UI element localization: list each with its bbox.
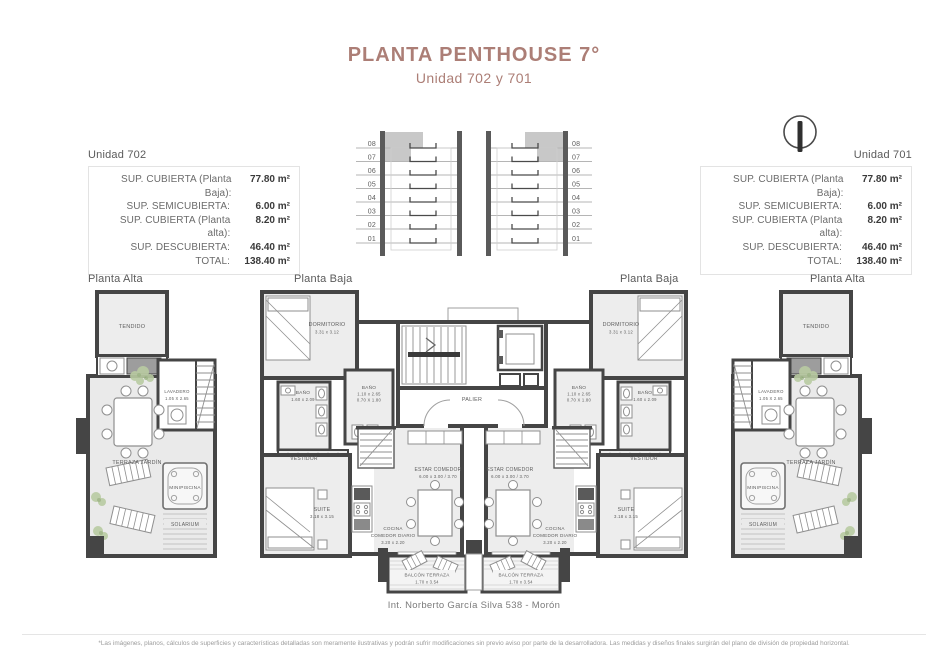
floor-label: 02 (368, 222, 376, 229)
room-label-lavadero: LAVADERO (758, 389, 784, 394)
plan-title-baja-left: Planta Baja (294, 273, 352, 285)
table-row: SUP. DESCUBIERTA:46.40 m² (707, 241, 902, 255)
floor-label: 01 (572, 236, 580, 243)
unit-701-card: Unidad 701 SUP. CUBIERTA (Planta Baja):7… (700, 149, 912, 275)
bed (266, 296, 310, 360)
room-label-balcon: BALCÓN TERRAZA (498, 572, 544, 578)
kitchen-counter (352, 486, 372, 532)
unit-702-table: SUP. CUBIERTA (Planta Baja):77.80 m² SUP… (88, 166, 300, 275)
room-label-estar: ESTAR COMEDOR (486, 467, 533, 473)
room-label-solarium: SOLARIUM (171, 522, 199, 528)
room-dim: 1.70 x 3.54 (509, 580, 533, 585)
unit-702-name: Unidad 702 (88, 149, 300, 161)
room-label-tendido: TENDIDO (803, 324, 830, 330)
room-dim: 1.05 X 2.65 (759, 396, 783, 401)
floor-label: 02 (572, 222, 580, 229)
room-label-bano: BAÑO (296, 389, 311, 396)
north-indicator-icon (784, 116, 816, 152)
divider-shaft (466, 554, 482, 590)
room-label-bano: BAÑO (572, 384, 587, 391)
room-dim: 1.10 x 2.65 (357, 392, 381, 397)
room-label-cocina: COMEDOR DIARIO (533, 533, 578, 538)
room-label-terraza: TERRAZA JARDÍN (786, 459, 835, 466)
room-dim: 3.18 x 3.15 (310, 514, 334, 519)
page-subtitle: Unidad 702 y 701 (0, 70, 948, 86)
room-label-minipiscina: MINIPISCINA (747, 485, 779, 490)
table-row: SUP. CUBIERTA (Planta alta):8.20 m² (95, 214, 290, 241)
room-dim: 1.60 x 2.09 (633, 397, 657, 402)
balcony (388, 551, 466, 592)
room-dim: 6.00 x 3.00 / 3.70 (419, 474, 457, 479)
room-label-cocina: COMEDOR DIARIO (371, 533, 416, 538)
floor-label: 03 (572, 209, 580, 216)
floor-label: 04 (572, 195, 580, 202)
room-label-estar: ESTAR COMEDOR (414, 467, 461, 473)
table-row: SUP. SEMICUBIERTA:6.00 m² (707, 200, 902, 214)
room-label-suite: SUITE (618, 507, 635, 513)
floor-label: 06 (368, 168, 376, 175)
floor-label: 05 (572, 182, 580, 189)
room-label-cocina: COCINA (383, 526, 403, 531)
planta-alta-plan-left (76, 292, 215, 558)
floor-label: 07 (572, 155, 580, 162)
floorplan-canvas: 08 07 06 05 04 03 02 01 08 07 06 05 04 0… (0, 0, 948, 670)
floor-label: 03 (368, 209, 376, 216)
room-label-solarium: SOLARIUM (749, 522, 777, 528)
plan-title-baja-right: Planta Baja (620, 273, 678, 285)
sofa (408, 431, 462, 444)
table-row: TOTAL:138.40 m² (95, 255, 290, 269)
plan-title-alta-left: Planta Alta (88, 273, 143, 285)
room-dim: 0.70 X 1.80 (357, 398, 382, 403)
room-label-tendido: TENDIDO (119, 324, 146, 330)
room-label-dormitorio: DORMITORIO (309, 322, 346, 328)
project-address: Int. Norberto García Silva 538 - Morón (0, 600, 948, 611)
floor-label: 08 (572, 141, 580, 148)
room-label-dormitorio: DORMITORIO (603, 322, 640, 328)
room-dim: 1.05 X 2.65 (165, 396, 189, 401)
shaft (500, 374, 520, 386)
room-dim: 0.70 X 1.80 (567, 398, 592, 403)
stairs-main (402, 326, 466, 384)
room-label-vestidor: VESTIDOR (630, 456, 658, 462)
room-dim: 1.10 x 2.65 (567, 392, 591, 397)
room-dim: 3.31 x 3.12 (609, 330, 633, 335)
washer (100, 358, 124, 374)
floor-label: 04 (368, 195, 376, 202)
unit-701-table: SUP. CUBIERTA (Planta Baja):77.80 m² SUP… (700, 166, 912, 275)
divider-wall (466, 540, 482, 554)
room-label-vestidor: VESTIDOR (290, 456, 318, 462)
room-dim: 3.20 x 2.20 (381, 540, 405, 545)
room-label-cocina: COCINA (545, 526, 565, 531)
room-label-balcon: BALCÓN TERRAZA (404, 572, 450, 578)
plan-title-alta-right: Planta Alta (810, 273, 865, 285)
room-dim: 1.70 x 3.54 (415, 580, 439, 585)
stairs-internal (356, 426, 396, 468)
table-row: SUP. CUBIERTA (Planta alta):8.20 m² (707, 214, 902, 241)
table-row: SUP. CUBIERTA (Planta Baja):77.80 m² (707, 173, 902, 200)
room-dim: 3.31 x 3.12 (315, 330, 339, 335)
floor-label: 08 (368, 141, 376, 148)
floor-label: 05 (368, 182, 376, 189)
room-label-terraza: TERRAZA JARDÍN (112, 459, 161, 466)
legal-disclaimer: *Las imágenes, planos, cálculos de super… (22, 634, 926, 647)
floor-label: 07 (368, 155, 376, 162)
floor-label: 06 (572, 168, 580, 175)
door-swing (424, 400, 450, 426)
unit-702-card: Unidad 702 SUP. CUBIERTA (Planta Baja):7… (88, 149, 300, 275)
unit-701-name: Unidad 701 (700, 149, 912, 161)
floor-label: 01 (368, 236, 376, 243)
room-dim: 1.60 x 2.09 (291, 397, 315, 402)
wall-stub (76, 418, 88, 454)
floor-slabs (410, 143, 436, 243)
planta-alta-plan-right (733, 292, 872, 558)
table-row: TOTAL:138.40 m² (707, 255, 902, 269)
door-swing (498, 400, 524, 426)
wall-stub (378, 548, 388, 582)
room-label-lavadero: LAVADERO (164, 389, 190, 394)
room-label-suite: SUITE (314, 507, 331, 513)
room-label-minipiscina: MINIPISCINA (169, 485, 201, 490)
room-label-bano: BAÑO (638, 389, 653, 396)
table-row: SUP. DESCUBIERTA:46.40 m² (95, 241, 290, 255)
wall-stub (86, 536, 104, 558)
party-wall (460, 428, 464, 556)
page-title: PLANTA PENTHOUSE 7° (0, 44, 948, 67)
table-row: SUP. CUBIERTA (Planta Baja):77.80 m² (95, 173, 290, 200)
table-row: SUP. SEMICUBIERTA:6.00 m² (95, 200, 290, 214)
shaft (524, 374, 538, 386)
room-dim: 3.20 x 2.20 (543, 540, 567, 545)
elevator (498, 326, 542, 370)
room-label-palier: PALIER (462, 397, 482, 403)
room-dim: 6.00 x 3.00 / 3.70 (491, 474, 529, 479)
room-dim: 3.18 x 3.15 (614, 514, 638, 519)
room-label-bano: BAÑO (362, 384, 377, 391)
